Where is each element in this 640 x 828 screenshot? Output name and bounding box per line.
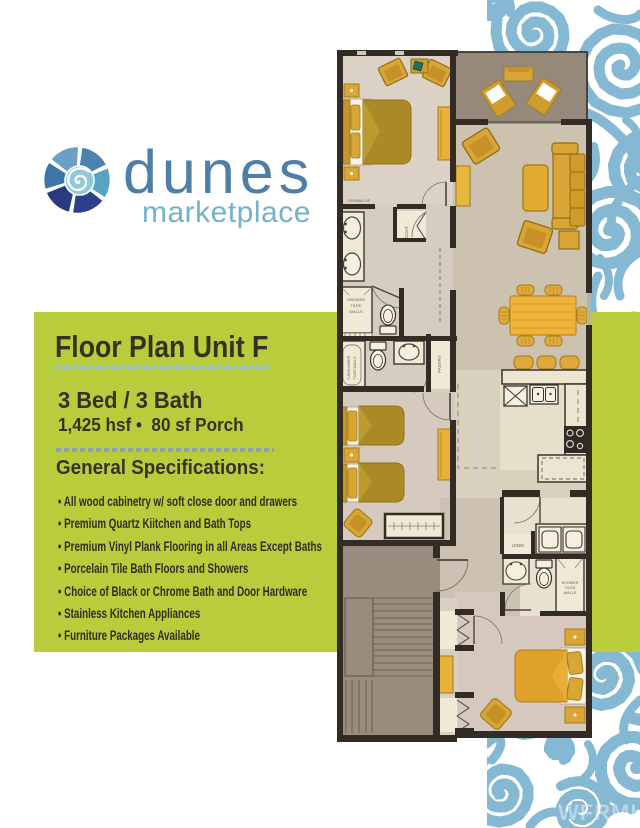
svg-text:TUB/SHOWER: TUB/SHOWER: [347, 355, 351, 380]
svg-text:TILED: TILED: [565, 586, 576, 590]
svg-text:TILED WALLS: TILED WALLS: [353, 356, 357, 380]
svg-text:OPENING UP: OPENING UP: [348, 199, 371, 203]
svg-text:TILED: TILED: [350, 303, 361, 308]
svg-text:LINEN: LINEN: [512, 543, 524, 548]
svg-text:SHOWER: SHOWER: [561, 581, 578, 585]
svg-text:SHOWER: SHOWER: [347, 297, 365, 302]
svg-text:COAT: COAT: [404, 226, 409, 238]
svg-text:PANTRY: PANTRY: [437, 355, 442, 373]
svg-text:WALLS: WALLS: [349, 309, 363, 314]
svg-text:WALLS: WALLS: [564, 591, 577, 595]
